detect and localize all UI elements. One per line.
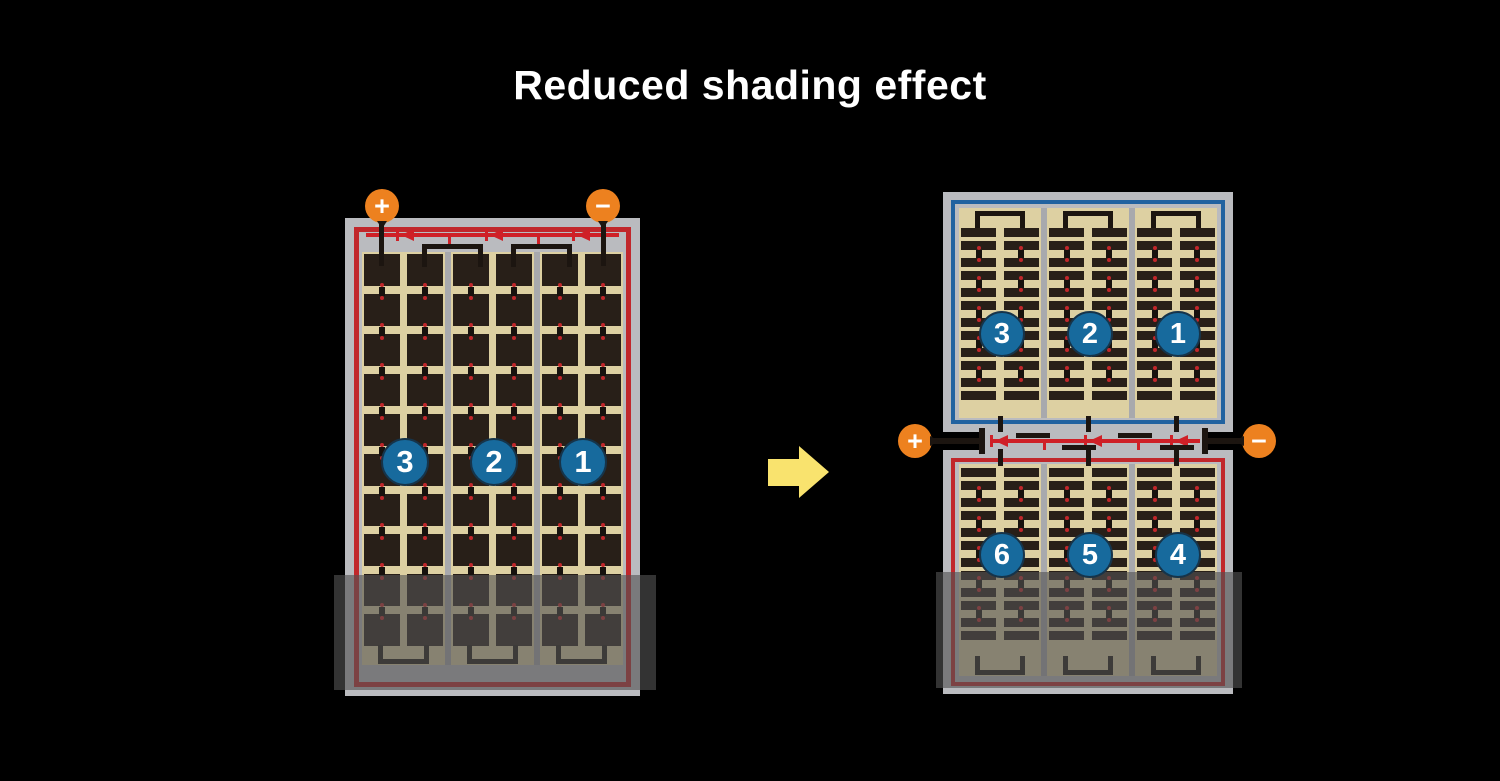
arrow-right-icon: [768, 459, 800, 486]
diode-icon: [577, 229, 590, 241]
page-title: Reduced shading effect: [0, 62, 1500, 109]
string-tap: [998, 449, 1003, 466]
diode-tap: [1137, 439, 1140, 450]
diode-icon: [401, 229, 414, 241]
string-badge: 3: [381, 438, 429, 486]
diode-tap: [1043, 439, 1046, 450]
minus-sign: −: [595, 193, 611, 220]
string-badge: 2: [470, 438, 518, 486]
plus-sign: +: [374, 193, 390, 220]
string-tap: [1174, 416, 1179, 432]
string-link-bridge: [422, 244, 483, 267]
shading-overlay: [334, 575, 656, 690]
string-badge: 1: [1155, 311, 1201, 357]
junction-wire: [1118, 433, 1152, 438]
string-tap: [1174, 449, 1179, 466]
string-badge: 6: [979, 532, 1025, 578]
minus-sign: −: [1251, 428, 1267, 455]
arrow-right-icon: [799, 446, 829, 498]
minus-terminal: −: [1242, 424, 1276, 458]
string-badge: 4: [1155, 532, 1201, 578]
string-tap: [1086, 416, 1091, 432]
junction-wire: [1016, 433, 1050, 438]
string-badge: 5: [1067, 532, 1113, 578]
string-link-bridge: [511, 244, 572, 267]
plus-terminal: +: [898, 424, 932, 458]
plus-sign: +: [907, 428, 923, 455]
minus-terminal: −: [586, 189, 620, 223]
diode-icon: [995, 435, 1008, 447]
diagram-canvas: Reduced shading effect + − 3 2 1: [0, 0, 1500, 781]
string-badge: 1: [559, 438, 607, 486]
string-tap: [998, 416, 1003, 432]
string-tap: [1086, 449, 1091, 466]
shading-overlay: [936, 572, 1242, 688]
plus-terminal: +: [365, 189, 399, 223]
diode-icon: [490, 229, 503, 241]
string-badge: 3: [979, 311, 1025, 357]
string-badge: 2: [1067, 311, 1113, 357]
